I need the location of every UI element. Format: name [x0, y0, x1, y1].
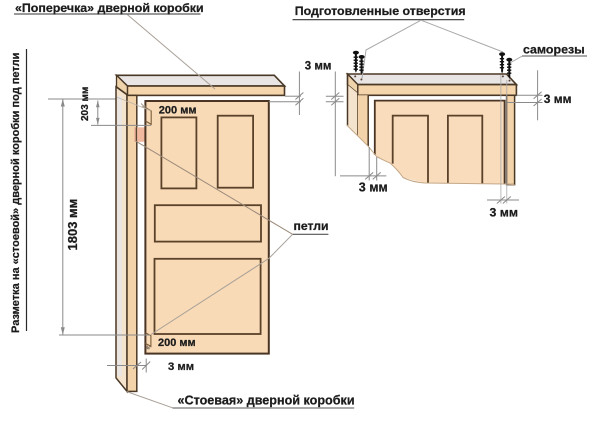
svg-text:3 мм: 3 мм — [544, 92, 572, 106]
svg-text:3 мм: 3 мм — [168, 361, 194, 373]
svg-text:3 мм: 3 мм — [359, 181, 388, 195]
svg-text:петли: петли — [294, 219, 329, 233]
svg-text:200 мм: 200 мм — [158, 337, 196, 349]
svg-text:1803 мм: 1803 мм — [65, 199, 80, 251]
svg-text:200 мм: 200 мм — [159, 104, 197, 116]
svg-text:3 мм: 3 мм — [305, 61, 332, 73]
svg-text:Разметка на «стоевой» дверной: Разметка на «стоевой» дверной коробки по… — [10, 53, 22, 333]
svg-text:«Стоевая» дверной коробки: «Стоевая» дверной коробки — [178, 393, 355, 407]
svg-text:203 мм: 203 мм — [80, 87, 91, 121]
svg-text:Подготовленные отверстия: Подготовленные отверстия — [295, 4, 466, 18]
svg-text:саморезы: саморезы — [523, 43, 585, 57]
svg-text:«Поперечка» дверной коробки: «Поперечка» дверной коробки — [15, 1, 204, 15]
svg-text:3 мм: 3 мм — [490, 206, 518, 220]
